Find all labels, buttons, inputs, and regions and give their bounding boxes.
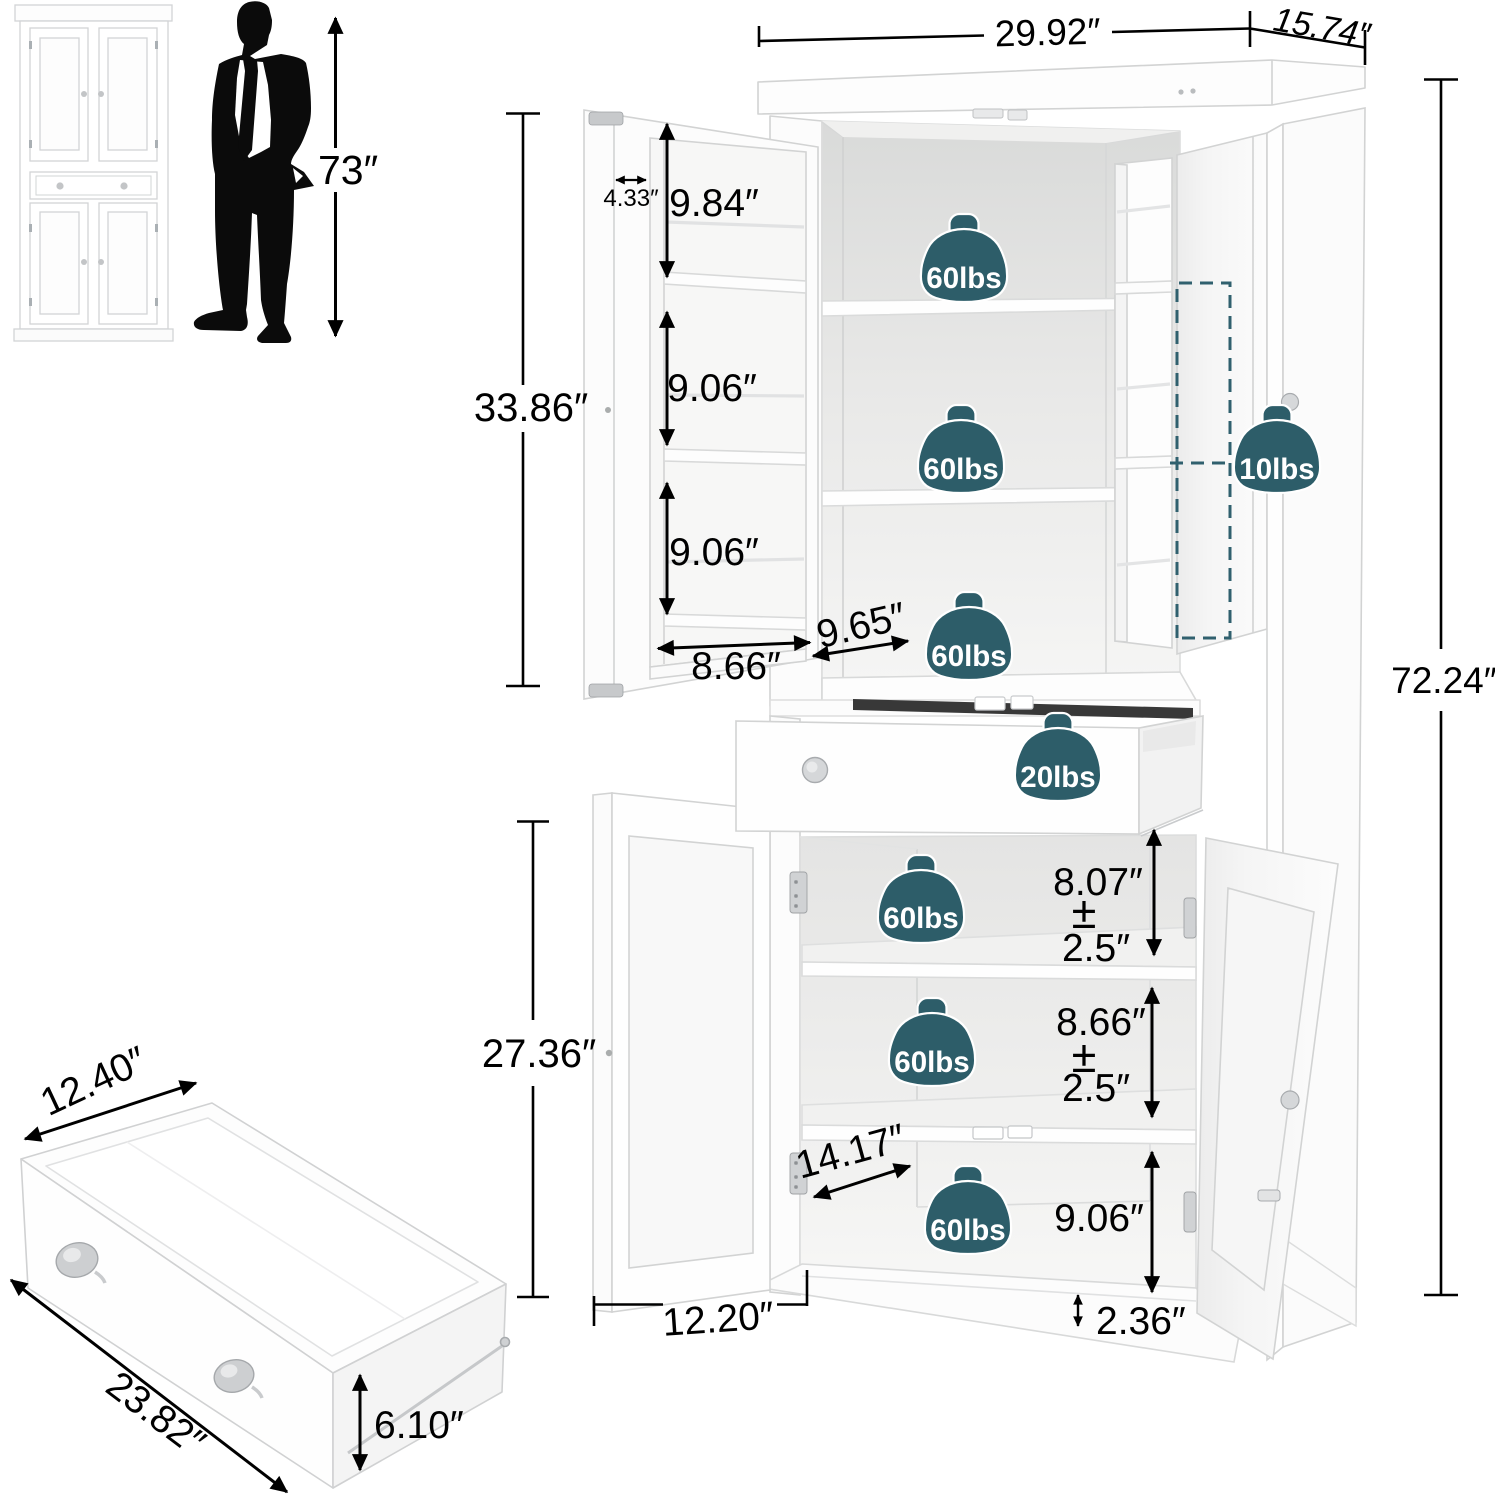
svg-text:2.5″: 2.5″ (1062, 927, 1130, 970)
svg-text:29.92″: 29.92″ (994, 11, 1101, 55)
svg-text:6.10″: 6.10″ (374, 1404, 464, 1447)
svg-text:9.84″: 9.84″ (669, 182, 759, 225)
svg-text:12.20″: 12.20″ (661, 1294, 775, 1345)
svg-text:60lbs: 60lbs (926, 262, 1001, 295)
svg-text:60lbs: 60lbs (894, 1046, 969, 1079)
svg-text:20lbs: 20lbs (1020, 761, 1095, 794)
svg-text:8.07″: 8.07″ (1053, 861, 1143, 904)
svg-text:2.5″: 2.5″ (1062, 1067, 1130, 1110)
svg-text:73″: 73″ (318, 147, 378, 193)
svg-text:60lbs: 60lbs (923, 453, 998, 486)
svg-text:72.24″: 72.24″ (1391, 660, 1495, 701)
svg-text:2.36″: 2.36″ (1096, 1300, 1186, 1343)
svg-text:9.06″: 9.06″ (669, 531, 759, 574)
svg-text:8.66″: 8.66″ (1056, 1001, 1146, 1044)
svg-text:8.66″: 8.66″ (691, 645, 781, 688)
svg-text:33.86″: 33.86″ (474, 386, 588, 430)
svg-text:60lbs: 60lbs (931, 640, 1006, 673)
svg-text:27.36″: 27.36″ (482, 1032, 596, 1076)
svg-text:4.33″: 4.33″ (603, 185, 659, 212)
svg-text:60lbs: 60lbs (930, 1214, 1005, 1247)
svg-text:10lbs: 10lbs (1239, 453, 1314, 486)
svg-text:9.06″: 9.06″ (667, 367, 757, 410)
svg-text:60lbs: 60lbs (883, 902, 958, 935)
svg-text:9.06″: 9.06″ (1054, 1197, 1144, 1240)
